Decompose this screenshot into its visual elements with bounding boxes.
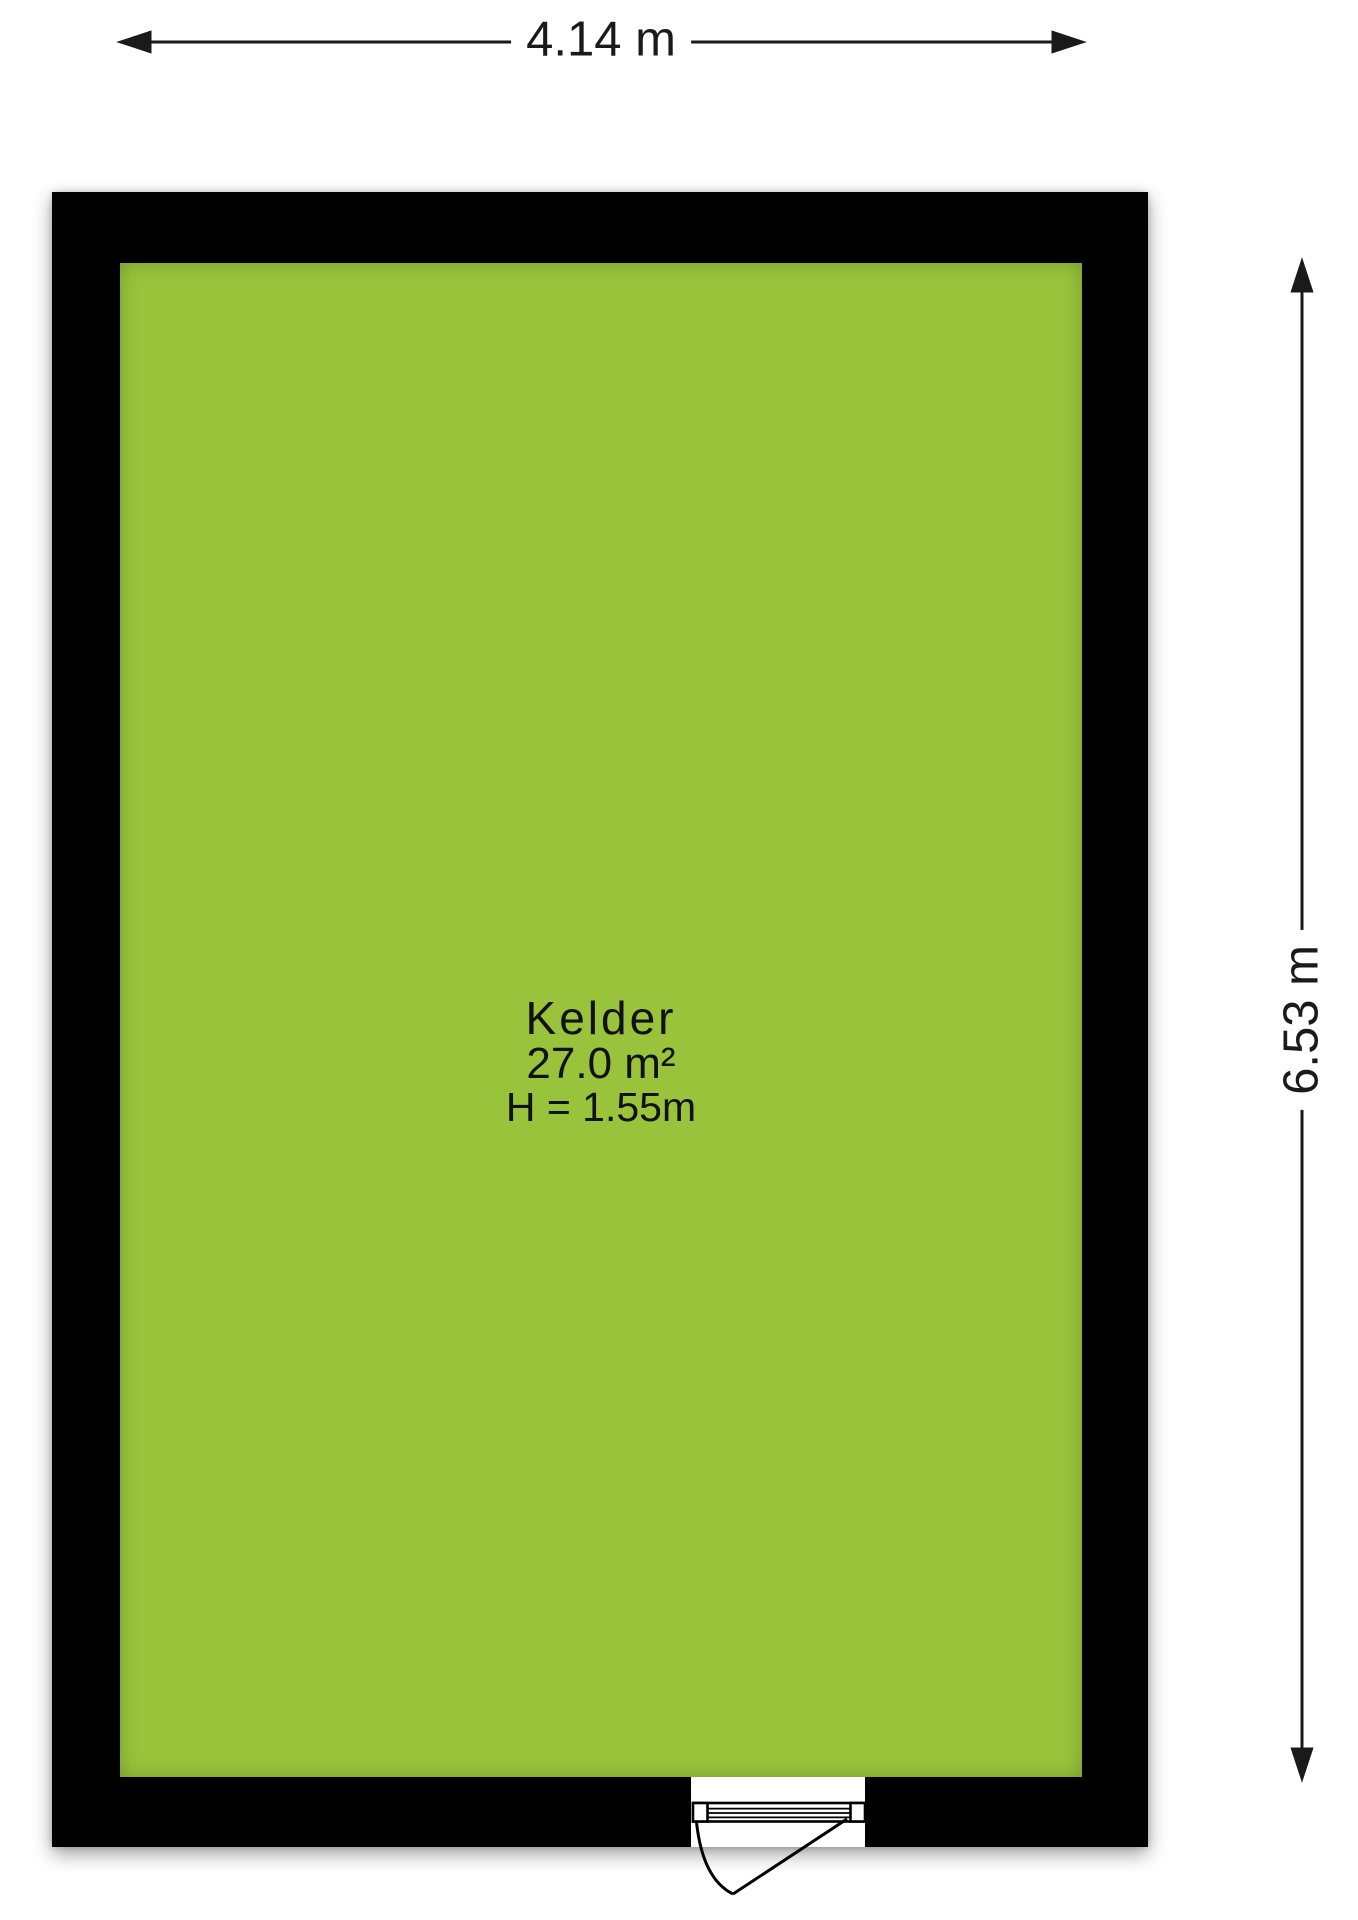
arrowhead-up-icon: [1293, 262, 1312, 291]
height-dimension-label: 6.53 m: [1276, 930, 1329, 1110]
width-dimension-label: 4.14 m: [511, 14, 691, 67]
room-label: Kelder 27.0 m² H = 1.55m: [401, 996, 801, 1128]
floorplan-canvas: 4.14 m 6.53 m Kelder 27.0 m² H = 1.55m: [0, 0, 1358, 1920]
room-area-label: 27.0 m²: [401, 1041, 801, 1086]
door-opening: [691, 1777, 865, 1847]
room-ceiling-height-label: H = 1.55m: [401, 1086, 801, 1128]
arrowhead-right-icon: [1053, 33, 1082, 52]
room-name-label: Kelder: [401, 996, 801, 1041]
arrowhead-left-icon: [121, 33, 150, 52]
arrowhead-down-icon: [1293, 1749, 1312, 1778]
